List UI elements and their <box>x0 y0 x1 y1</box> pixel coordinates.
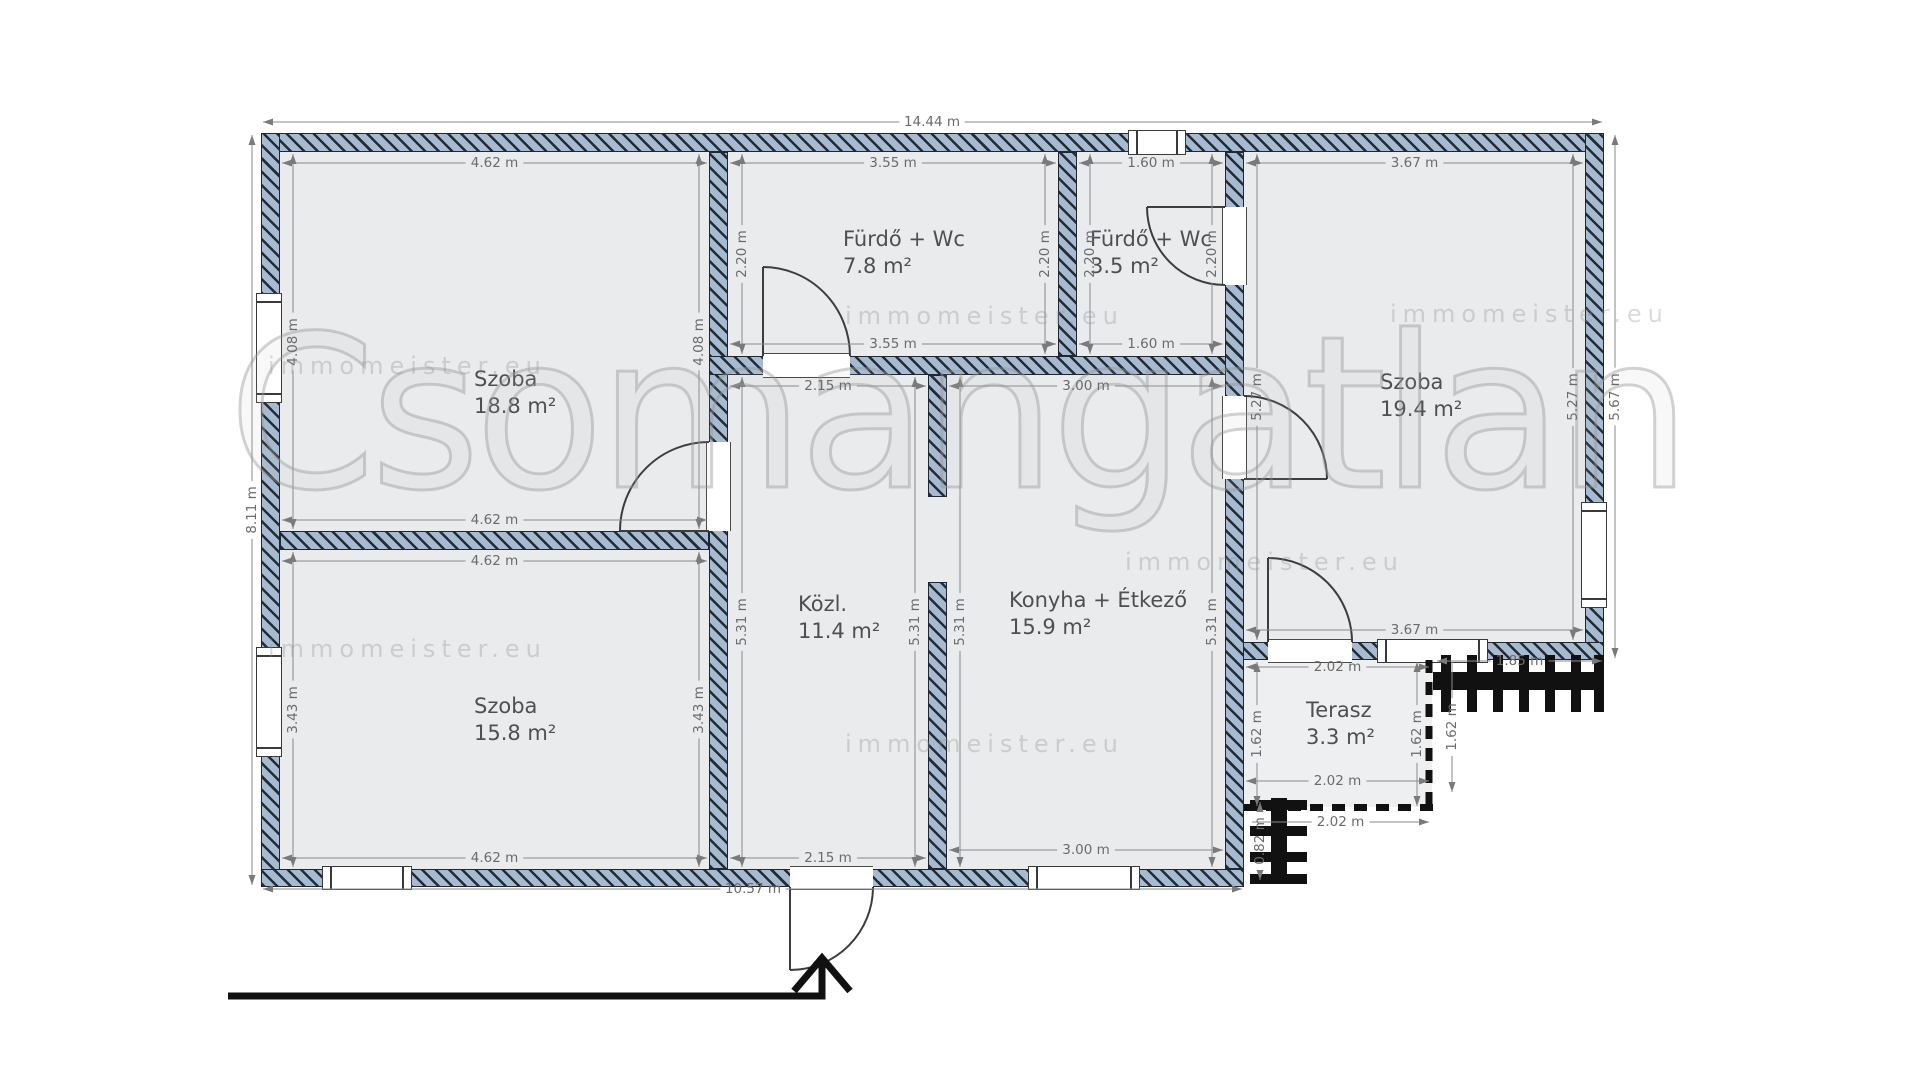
room-area: 15.9 m² <box>1009 614 1187 641</box>
dimension-label-szoba3_height_right: 5.27 m <box>1565 373 1581 421</box>
dimension-label-furdo2_height_left: 2.20 m <box>1082 230 1098 278</box>
dimension-label-kozl_height_right: 5.31 m <box>907 598 923 646</box>
room-szoba1 <box>280 152 709 531</box>
dimension-label-kozl_width_bottom: 2.15 m <box>804 850 852 866</box>
dimension-label-bottom_left_total: 10.57 m <box>725 881 781 897</box>
dimension-label-konyha_width_bottom: 3.00 m <box>1062 842 1110 858</box>
entrance-arrow <box>228 958 850 996</box>
label-szoba1: Szoba 18.8 m² <box>474 366 556 420</box>
room-area: 15.8 m² <box>474 720 556 747</box>
room-name: Szoba <box>474 693 556 720</box>
room-name: Fürdő + Wc <box>1090 226 1212 253</box>
room-name: Fürdő + Wc <box>843 226 965 253</box>
label-furdo2: Fürdő + Wc 3.5 m² <box>1090 226 1212 280</box>
window-szoba2-left <box>256 647 282 757</box>
label-konyha: Konyha + Étkező 15.9 m² <box>1009 587 1187 641</box>
room-name: Terasz <box>1306 697 1375 724</box>
dimension-label-szoba2_height_right: 3.43 m <box>691 686 707 734</box>
wall-kozl-konyha-lower <box>928 582 947 869</box>
dimension-label-furdo2_width_top: 1.60 m <box>1127 155 1175 171</box>
window-konyha-bottom <box>1028 866 1140 890</box>
dimension-label-terasz_width_bottom: 2.02 m <box>1314 773 1362 789</box>
dimension-label-szoba3_height_left: 5.27 m <box>1249 373 1265 421</box>
dimension-label-left_total: 8.11 m <box>244 486 260 534</box>
room-area: 7.8 m² <box>843 253 965 280</box>
room-area: 3.3 m² <box>1306 724 1375 751</box>
dimension-label-kozl_width_top: 2.15 m <box>804 378 852 394</box>
room-kozl-konyha-pass <box>928 497 947 582</box>
dimension-label-szoba1_width_bottom: 4.62 m <box>471 512 519 528</box>
dimension-label-konyha_height_left: 5.31 m <box>952 598 968 646</box>
label-furdo1: Fürdő + Wc 7.8 m² <box>843 226 965 280</box>
dimension-label-szoba1_width_top: 4.62 m <box>471 155 519 171</box>
wall-kozl-konyha-upper <box>928 375 947 497</box>
wall-left-rooms-divider <box>280 531 709 550</box>
dimension-label-szoba3_width_top: 3.67 m <box>1391 155 1439 171</box>
dimension-label-terasz_width_top: 2.02 m <box>1314 659 1362 675</box>
room-area: 3.5 m² <box>1090 253 1212 280</box>
window-szoba1-left <box>256 293 282 403</box>
dimension-label-furdo1_height_left: 2.20 m <box>734 230 750 278</box>
label-szoba3: Szoba 19.4 m² <box>1380 369 1462 423</box>
room-area: 18.8 m² <box>474 393 556 420</box>
label-szoba2: Szoba 15.8 m² <box>474 693 556 747</box>
dimension-label-szoba1_height_right: 4.08 m <box>691 318 707 366</box>
window-furdo2-top <box>1128 130 1186 155</box>
wall-exterior-left <box>261 133 280 887</box>
door-opening-szoba1 <box>706 442 731 531</box>
dimension-label-szoba1_height_left: 4.08 m <box>285 318 301 366</box>
dimension-label-furdo1_width_bottom: 3.55 m <box>869 336 917 352</box>
dimension-label-furdo2_width_bottom: 1.60 m <box>1127 336 1175 352</box>
door-opening-entrance <box>790 866 873 890</box>
dimension-label-terasz_height_left: 1.62 m <box>1249 710 1265 758</box>
dimension-label-terasz_height_right: 1.62 m <box>1409 710 1425 758</box>
dimension-label-right_total: 5.67 m <box>1607 373 1623 421</box>
room-name: Közl. <box>798 591 880 618</box>
door-opening-furdo2 <box>1222 207 1247 285</box>
floor-plan: Szoba 18.8 m² Fürdő + Wc 7.8 m² Fürdő + … <box>0 0 1920 1080</box>
wall-furdo-divider <box>1058 152 1077 356</box>
dimension-label-stairs_right_width: 1.85 m <box>1496 653 1544 669</box>
dimension-label-szoba2_width_top: 4.62 m <box>471 553 519 569</box>
door-opening-szoba3 <box>1222 396 1247 479</box>
dimension-label-konyha_width_top: 3.00 m <box>1062 378 1110 394</box>
window-szoba3-right <box>1581 502 1607 608</box>
door-opening-furdo1 <box>763 353 850 378</box>
room-name: Konyha + Étkező <box>1009 587 1187 614</box>
dimension-label-stairs_right_height: 1.62 m <box>1444 703 1460 751</box>
dimension-label-stairs_bottom_height: 0.82 m <box>1252 817 1268 865</box>
dimension-label-kozl_height_left: 5.31 m <box>734 598 750 646</box>
label-kozl: Közl. 11.4 m² <box>798 591 880 645</box>
dimension-label-overall_top: 14.44 m <box>904 114 960 130</box>
dimension-label-furdo2_height_right: 2.20 m <box>1204 230 1220 278</box>
dimension-label-terasz_width_outside: 2.02 m <box>1317 814 1365 830</box>
room-name: Szoba <box>1380 369 1462 396</box>
dimension-label-furdo1_width_top: 3.55 m <box>869 155 917 171</box>
dimension-label-szoba3_width_bottom: 3.67 m <box>1391 622 1439 638</box>
window-szoba2-bottom <box>322 866 412 890</box>
dimension-label-szoba2_width_bottom: 4.62 m <box>471 850 519 866</box>
room-name: Szoba <box>474 366 556 393</box>
dimension-label-furdo1_height_right: 2.20 m <box>1037 230 1053 278</box>
dimension-label-szoba2_height_left: 3.43 m <box>285 686 301 734</box>
room-area: 19.4 m² <box>1380 396 1462 423</box>
wall-exterior-top <box>261 133 1604 152</box>
window-szoba3-terasz <box>1377 639 1488 663</box>
label-terasz: Terasz 3.3 m² <box>1306 697 1375 751</box>
dimension-label-konyha_height_right: 5.31 m <box>1204 598 1220 646</box>
room-area: 11.4 m² <box>798 618 880 645</box>
